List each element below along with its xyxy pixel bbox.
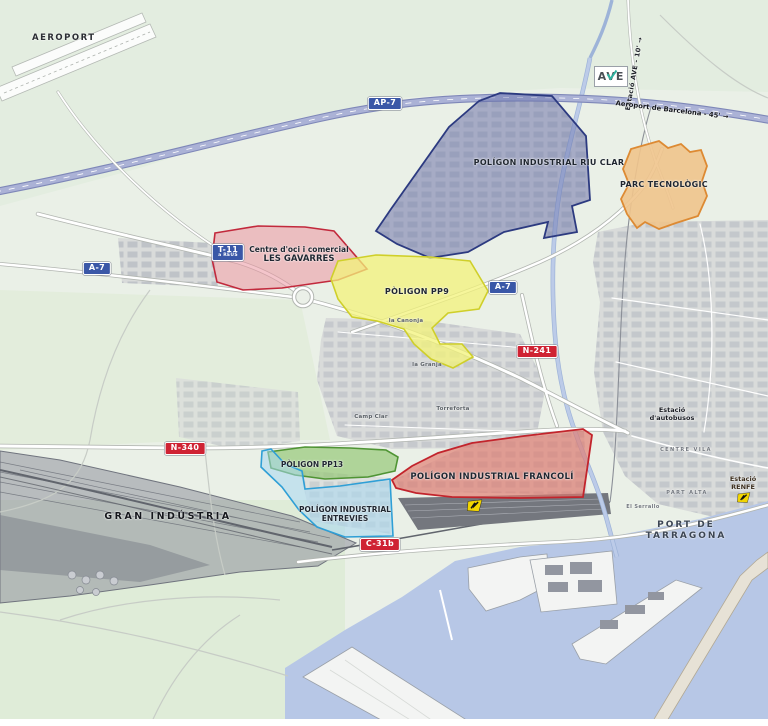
district-el-serrallo: El Serrallo xyxy=(626,504,659,510)
badge-n340: N-340 xyxy=(165,442,206,455)
badge-c31b: C-31b xyxy=(360,538,400,551)
place-la-canonja: la Canonja xyxy=(389,318,423,325)
place-torreforta: Torreforta xyxy=(436,406,469,413)
zone-pp9-label: PÒLIGON PP9 xyxy=(385,287,449,297)
zone-gran-industria-label: GRAN INDÚSTRIA xyxy=(104,511,231,522)
badge-a7-west: A-7 xyxy=(83,262,111,275)
place-la-granja: la Granja xyxy=(412,362,442,369)
zone-les-gavarres-label: Centre d'oci i comercial LES GAVARRES xyxy=(249,245,348,264)
airport-label: AEROPORT xyxy=(32,33,96,43)
port-label: PORT DE TARRAGONA xyxy=(646,520,727,542)
zone-pp13-label: PÒLIGON PP13 xyxy=(281,460,343,469)
badge-n241: N-241 xyxy=(517,345,558,358)
renfe-station-label: Estació RENFE xyxy=(730,476,756,492)
zone-francoli-label: POLÍGON INDUSTRIAL FRANCOLÍ xyxy=(410,472,573,482)
badge-ap7: AP-7 xyxy=(368,97,402,110)
ave-logo: AVE xyxy=(594,66,628,87)
badge-a7-east: A-7 xyxy=(489,281,517,294)
badge-t11: T-11 a REUS xyxy=(212,244,244,261)
zone-parc-tecnologic-label: PARC TECNOLÒGIC xyxy=(620,180,708,190)
place-camp-clar: Camp Clar xyxy=(354,414,387,421)
ave-check-icon xyxy=(606,69,618,81)
zone-entrevies-label: POLÍGON INDUSTRIAL ENTREVIES xyxy=(299,505,391,523)
district-part-alta: PART ALTA xyxy=(666,490,708,496)
zone-riu-clar-label: POLÍGON INDUSTRIAL RIU CLAR xyxy=(474,158,625,168)
bus-station-label: Estació d'autobusos xyxy=(650,407,695,423)
map-canvas: AEROPORT POLÍGON INDUSTRIAL RIU CLAR PAR… xyxy=(0,0,768,726)
map-margin xyxy=(0,719,768,726)
district-centre-vila: CENTRE VILA xyxy=(660,447,712,453)
